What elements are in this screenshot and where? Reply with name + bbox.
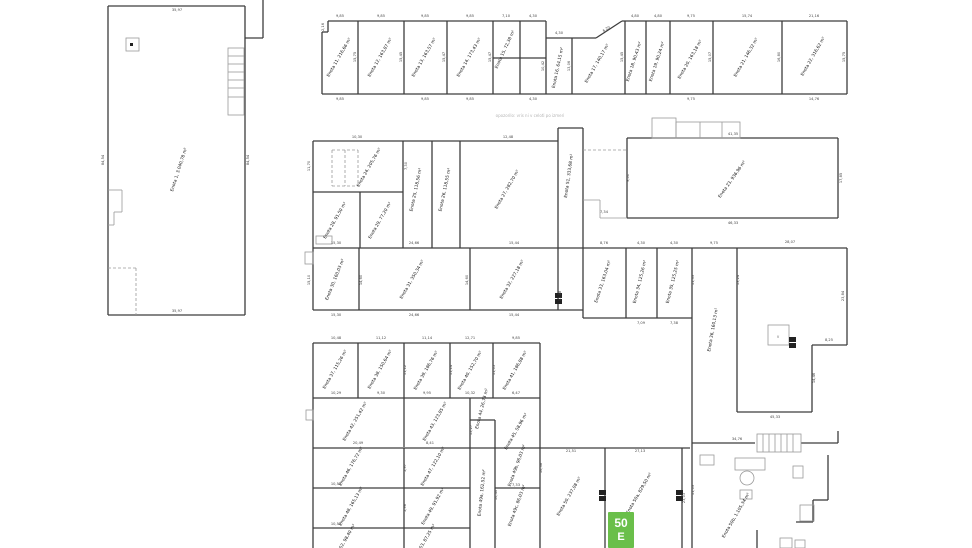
dim-label: 7,34 [600,210,609,214]
dim-label: 8,76 [600,241,609,245]
dim-label: 15,07 [708,52,712,62]
dim-label: 13,08 [558,290,562,301]
dim-label: 7,38 [670,321,679,325]
dim-label: 34,76 [732,437,743,441]
detail-box [652,118,676,138]
unit-label: Enota 17, 140,17 m² [583,43,610,85]
dim-label: 4,30 [529,14,538,18]
detail-box [793,466,803,478]
dim-label: 15,44 [509,313,520,317]
dim-label: 28,07 [785,240,795,244]
dim-label: 7,30 [404,161,408,170]
dim-label: 9,85 [512,336,520,340]
dim-label: 9,30 [377,391,386,395]
unit-label: Enota 25, 118,56 m² [408,167,423,212]
detail-circle [740,471,754,485]
detail-box [780,538,792,548]
dim-label: 6,20 [602,25,611,33]
unit-label: Enota 20, 163,18 m² [676,39,703,81]
dim-label: 9,85 [377,14,385,18]
unit-label: Enota 41, 186,88 m² [501,350,528,392]
unit-label: Enota 32, 227,18 m² [498,259,525,301]
dim-label: 12,71 [465,336,475,340]
dim-label: 10,29 [331,391,342,395]
dim-label: 7,10 [502,14,511,18]
dim-label: 9,85 [421,97,429,101]
unit-label: Enota 29, 77,20 m² [367,201,393,240]
dim-label: 10,30 [352,135,363,139]
detail-box [735,458,765,470]
unit-label: Enota 31, 350,34 m² [398,259,425,301]
dim-label: 10,32 [465,391,475,395]
dim-label: 9,85 [421,14,429,18]
dim-label: 24,66 [409,241,420,245]
dim-label: 23,84 [841,290,845,301]
dim-label: 15,47 [442,52,446,62]
unit-label: Enota 13, 163,57 m² [410,37,437,79]
unit-label: Enota 23, 936,96 m² [717,159,747,199]
dim-label: 15,47 [488,52,492,62]
unit-label: Enota 40, 152,70 m² [456,350,483,392]
badge-number: 50 [614,516,627,531]
unit-label: Enota 22, 316,62 m² [799,36,826,78]
dim-label: 20,49 [353,441,364,445]
dim-label: 4,30 [637,241,646,245]
dim-label: 21,51 [566,449,576,453]
dim-label: 84,54 [101,154,105,165]
dim-label: 24,66 [409,313,420,317]
unit-label: Enota 49, 91,92 m² [420,487,446,526]
dim-label: 45,33 [770,415,780,419]
dim-label: 14,76 [809,97,820,101]
unit-label: Enota 12, 163,87 m² [366,37,393,79]
dim-label: 15,75 [353,52,357,62]
unit-label: Enota 49b, 96,03 m² [507,444,528,488]
unit-label: Enota 28, 91,50 m² [322,201,348,240]
unit-label: Enota 1, 3.040,78 m² [169,147,189,193]
unit-label: Enota 38, 150,64 m² [366,349,393,391]
dim-label: 10,42 [541,61,545,71]
dim-label: 12,48 [503,135,514,139]
floor-plan: Enota 1, 3.040,78 m²Enota 11, 216,66 m²E… [0,0,972,548]
unit-label: Enota 44, 26,73 m² [474,388,490,430]
unit-label: Enota 50, 237,08 m² [555,476,582,518]
dim-label: 7,33 [512,483,520,487]
unit-label: Enota 50b, 1.105,34 m² [721,492,752,539]
unit-label: Enota 36, 160,13 m² [706,307,720,352]
unit-label: Enota 37, 115,26 m² [321,349,348,391]
dim-label: 15,45 [620,52,624,62]
dim-label: 35,97 [172,8,182,12]
dim-label: 7,09 [637,321,646,325]
warning-note: opozorilo: vris ni v celoti po izmeri [496,113,565,118]
dim-label: 11,33 [691,275,695,285]
dim-label: 8,41 [426,441,434,445]
dim-label: 10,50 [331,482,342,486]
dim-label: 5,97 [403,464,407,472]
unit-label: Enota 34, 125,26 m² [632,259,649,304]
dim-label: 9,51 [626,174,630,182]
dim-label: 14,60 [465,274,469,285]
dim-label: 10,50 [331,522,342,526]
unit-label: Enota 15, 72,38 m² [494,29,517,69]
detail-box [757,434,801,452]
dim-label: 9,75 [687,14,695,18]
dim-label: 9,85 [336,14,344,18]
dim-label: 15,10 [307,274,311,285]
unit-label: Enota 42, 251,42 m² [341,401,368,443]
unit-label: Enota 48, 165,13 m² [337,486,364,528]
dim-label: 46,33 [728,221,738,225]
unit-label: Enota 49c, 86,03 m² [507,484,528,528]
unit-label: Enota 27, 282,70 m² [493,169,520,211]
dim-label: 9,75 [687,97,695,101]
dim-label: 15,30 [331,241,342,245]
dim-label: 17,85 [839,173,843,183]
unit-label: Enota 43, 123,85 m² [421,401,448,443]
detail-box [700,455,714,465]
unit-label: Enota 18, 90,43 m² [625,41,644,83]
unit-label: Enota 46, 176,72 m² [337,446,364,488]
badge-letter: E [617,531,624,545]
dim-label: 14,60 [359,274,363,285]
marker-badge-50e[interactable]: 50 E [608,512,634,548]
unit-label: Enota 26, 118,55 m² [437,167,452,212]
unit-label: Enota 49a, 162,52 m² [477,469,488,517]
unit-label: Enota 33, 163,04 m² [593,259,612,303]
unit-label: Enota 21, 146,32 m² [732,37,759,79]
dim-label: 4,30 [555,31,564,35]
dim-label: 16,80 [777,51,781,62]
dim-label: 10,48 [331,336,342,340]
dim-label: 9,75 [710,241,718,245]
unit-label: Enota 35, 125,25 m² [665,259,682,304]
unit-label: Enota 14, 173,43 m² [455,37,482,79]
dim-label: 16,38 [539,462,543,473]
dim-label: 4,80 [654,14,663,18]
unit-label: Enota 50a, 829,50 m² [625,471,654,515]
dim-label: 11,12 [376,336,386,340]
canvas: Enota 1, 3.040,78 m²Enota 11, 216,66 m²E… [0,0,972,548]
dim-label: 15,74 [742,14,753,18]
unit-label: Enota 45, 58,96 m² [503,412,529,451]
unit-label: Enota 16, 64,15 m² [551,47,566,89]
dim-label: 84,54 [246,154,250,165]
unit-label: Enota 39, 186,76 m² [412,350,439,392]
detail-box [795,540,805,548]
dim-label: 14,46 [812,372,816,383]
wall-hatch [599,496,606,501]
tiny-label: v [777,334,780,339]
dim-label: 11,70 [307,160,311,171]
dim-label: 9,95 [423,391,431,395]
dim-label: 9,85 [466,97,474,101]
dim-label: 11,05 [492,365,496,375]
dim-label: 27,13 [635,449,645,453]
dim-label: 9,85 [466,14,474,18]
dim-label: 4,30 [529,97,538,101]
dim-label: 11,14 [449,364,453,375]
dim-label: 9,85 [336,97,344,101]
dim-label: 11,14 [422,336,433,340]
dim-label: 2,16 [321,22,325,31]
dim-label: 4,80 [631,14,640,18]
dim-label: 15,45 [399,52,403,62]
dim-label: 5,98 [403,503,407,512]
wall-hatch [789,343,796,348]
unit-label: Enota 24, 205,76 m² [355,147,382,189]
unit-label: Enota 53, 87,25 m² [411,523,437,548]
unit-label: Enota 47, 122,10 m² [419,446,446,488]
dim-label: 23,03 [682,493,686,503]
wall-hatch [789,337,796,342]
detail-box [306,410,313,420]
dim-label: 6,47 [512,391,520,395]
wall-hatch [599,490,606,495]
dim-label: 15,44 [509,241,520,245]
unit-label: Enota 30, 160,03 m² [324,258,346,302]
dim-label: 35,97 [172,309,182,313]
dim-label: 21,16 [809,14,820,18]
dim-label: 8,25 [825,338,833,342]
dim-label: 11,03 [691,485,695,495]
unit-label: Enota 51, 333,68 m² [563,153,575,198]
dim-label: 11,12 [403,365,407,375]
dim-label: 4,30 [670,241,679,245]
unit-label: Enota 52, 98,40 m² [331,523,357,548]
dim-label: 15,27 [469,425,473,435]
column-dot [130,43,133,46]
dim-label: 41,35 [728,132,738,136]
detail-box [228,48,244,115]
dim-label: 15,75 [842,52,846,62]
detail-box [305,252,313,264]
dim-label: 15,30 [331,313,342,317]
unit-label: Enota 11, 216,66 m² [325,37,352,79]
detail-box [800,505,814,521]
unit-label: Enota 19, 90,24 m² [648,41,667,83]
dim-label: 13,24 [736,274,740,285]
dim-label: 13,06 [567,60,571,71]
dim-label: 16,46 [494,489,498,500]
